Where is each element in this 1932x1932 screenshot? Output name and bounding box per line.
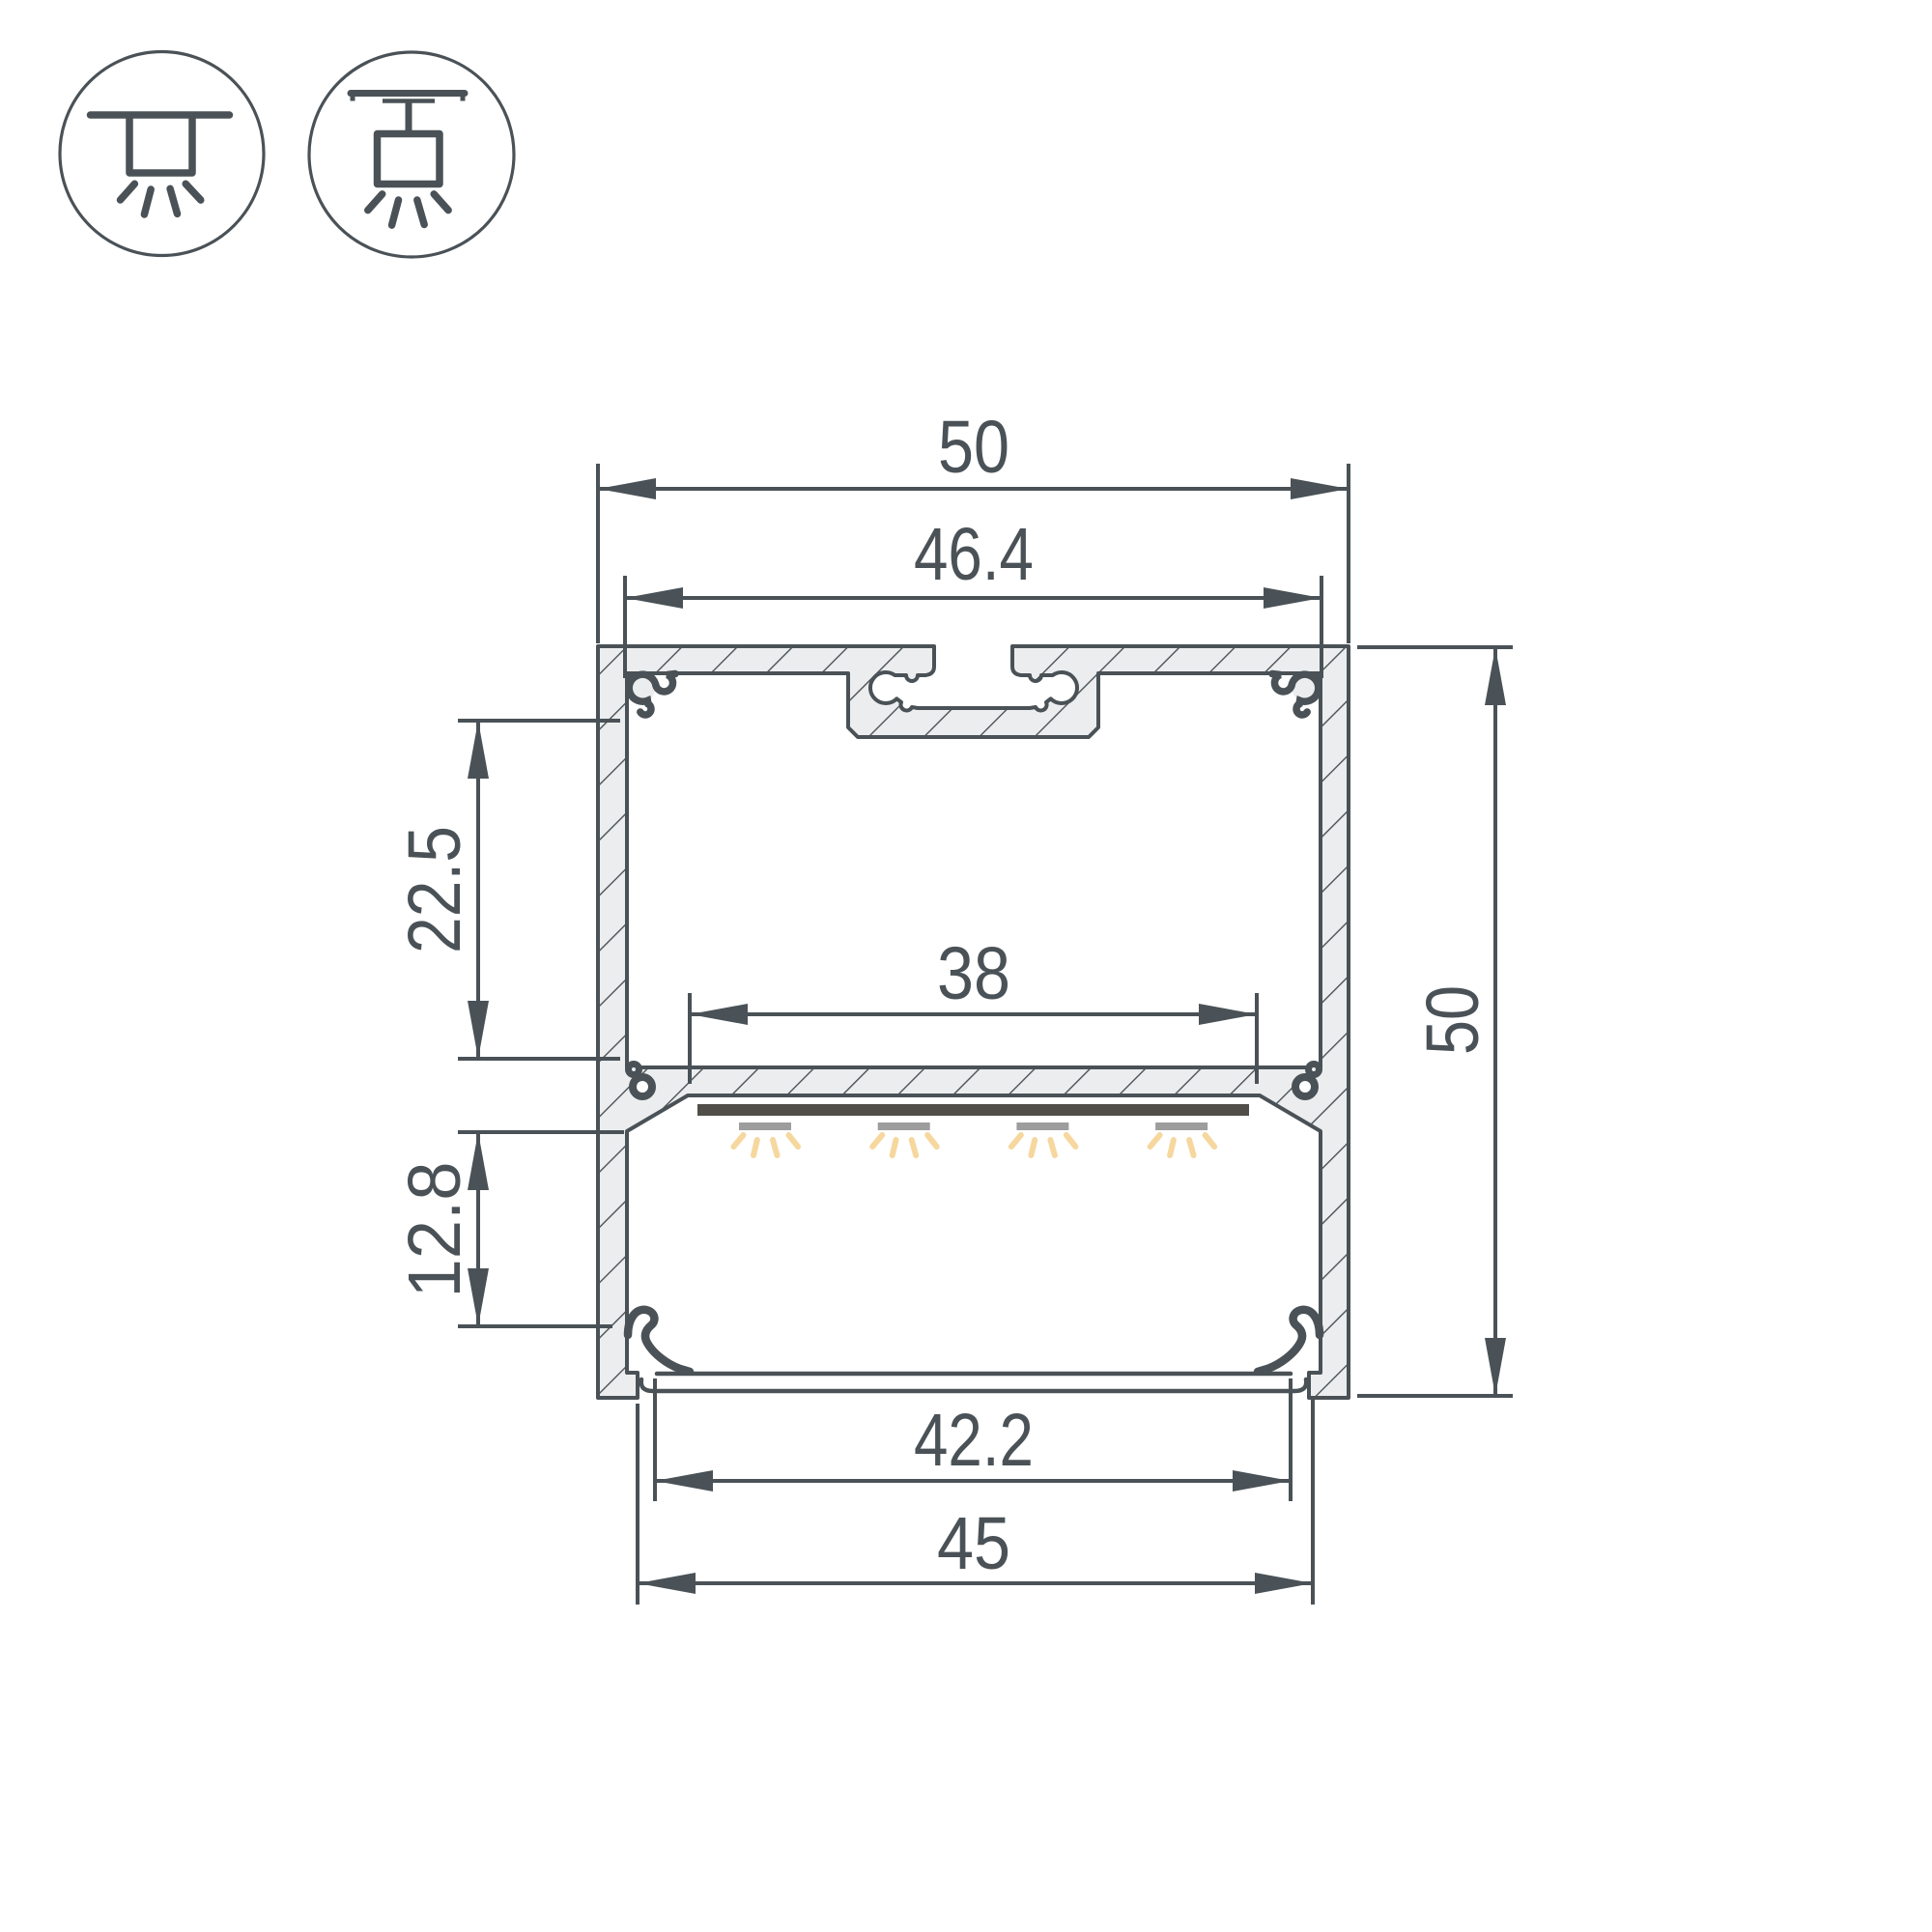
svg-text:12.8: 12.8: [393, 1162, 476, 1298]
svg-text:38: 38: [937, 932, 1010, 1015]
svg-text:46.4: 46.4: [914, 513, 1034, 596]
svg-text:50: 50: [1411, 985, 1494, 1055]
svg-text:45: 45: [937, 1502, 1010, 1585]
svg-text:42.2: 42.2: [914, 1399, 1034, 1482]
svg-text:50: 50: [938, 406, 1009, 489]
svg-text:22.5: 22.5: [393, 826, 476, 953]
